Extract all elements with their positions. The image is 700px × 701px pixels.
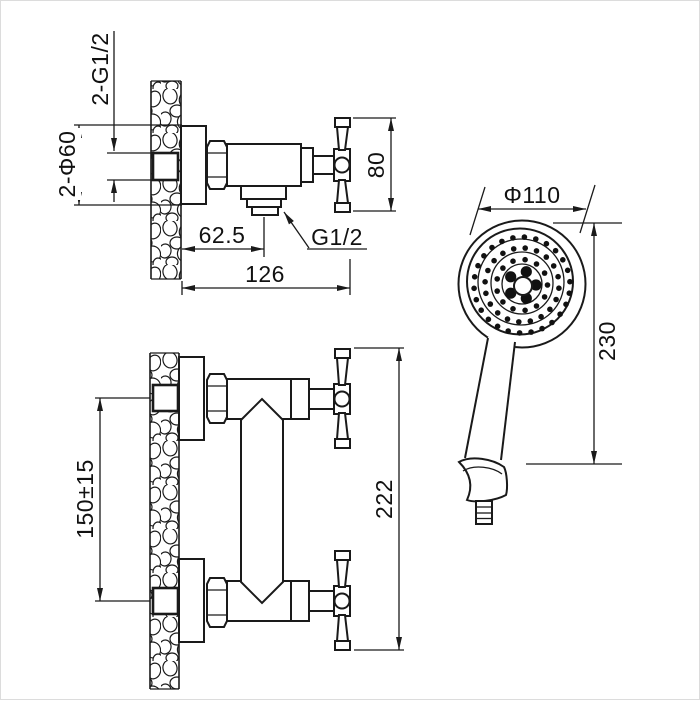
dim-shower-length: 230 <box>526 223 622 464</box>
nozzle-dot <box>516 319 522 325</box>
cross-handle-bottom <box>334 551 350 650</box>
nozzle-dot <box>528 329 534 335</box>
nozzle-dot <box>482 279 488 285</box>
nozzle-dot <box>542 294 548 300</box>
nozzle-dot <box>510 258 516 264</box>
hex-nut-bottom <box>207 578 227 627</box>
nozzle-dot <box>481 253 487 259</box>
nozzle-dot <box>505 328 511 334</box>
handle-span-label: 80 <box>363 152 389 179</box>
nozzle-dot <box>560 257 566 263</box>
nozzle-dot <box>567 290 573 296</box>
nozzle-dot <box>534 261 540 267</box>
hand-shower: Φ110 230 <box>459 182 623 524</box>
nozzle-dot <box>474 297 480 303</box>
nozzle-dot <box>549 320 555 326</box>
dim-inlet-threads: 2-G1/2 <box>87 31 152 202</box>
nozzle-dot <box>565 268 571 274</box>
nozzle-dot <box>557 311 563 317</box>
nozzle-dot <box>485 268 491 274</box>
inlet-pipe-top <box>153 385 178 411</box>
nozzle-dot <box>539 326 545 332</box>
nozzle-dot <box>555 274 561 280</box>
nozzle-dot <box>522 308 528 314</box>
bonnet-bottom <box>291 581 309 621</box>
escutcheon-diameter-label: 2-Φ60 <box>54 131 80 198</box>
handle-hub-side <box>335 158 350 173</box>
dim-overall-height: 222 <box>354 348 404 650</box>
escutcheon-bottom <box>179 559 204 642</box>
valve-front-view: 150±15 222 <box>72 348 404 689</box>
handle-stem-top <box>309 389 334 409</box>
hex-nut-top <box>207 374 227 423</box>
nozzle-dot <box>500 299 506 305</box>
nozzle-dot <box>472 274 478 280</box>
holder-bracket <box>459 458 507 501</box>
handle-stem-side <box>313 156 334 174</box>
hose-connector <box>476 501 492 524</box>
shower-head-face <box>459 221 586 461</box>
nozzle-dot <box>563 302 569 308</box>
head-diameter-label: Φ110 <box>503 182 560 208</box>
nozzle-dot <box>556 285 562 291</box>
nozzle-dot <box>494 276 500 282</box>
nozzle-dot <box>510 306 516 312</box>
escutcheon-side <box>181 126 206 204</box>
nozzle-dot <box>538 314 544 320</box>
nozzle-dot <box>544 254 550 260</box>
inlet-spacing-label: 150±15 <box>72 459 98 539</box>
nozzle-dot <box>488 301 494 307</box>
inlet-pipe-bottom <box>153 588 178 614</box>
cross-handle-side <box>334 118 350 212</box>
nozzle-dot <box>495 324 501 330</box>
nozzle-dot <box>528 318 534 324</box>
nozzle-dot <box>534 303 540 309</box>
cross-handle-top <box>334 349 350 448</box>
outlet-nipple <box>241 186 286 215</box>
nozzle-dot <box>551 263 557 269</box>
nozzle-dot <box>499 239 505 245</box>
nozzle-dot <box>553 297 559 303</box>
nozzle-dot <box>547 307 553 313</box>
handle-hub-top <box>335 392 350 407</box>
handle-hub-bottom <box>335 594 350 609</box>
nozzle-dot <box>491 258 497 264</box>
dim-handle-span: 80 <box>353 118 396 211</box>
nozzle-dot <box>486 317 492 323</box>
inlet-threads-label: 2-G1/2 <box>87 32 113 105</box>
nozzle-dot <box>500 251 506 257</box>
nozzle-dot <box>471 286 477 292</box>
nozzle-dot <box>533 236 539 242</box>
outlet-thread-label: G1/2 <box>311 224 363 250</box>
riser-pipe <box>241 399 283 603</box>
nozzle-dot <box>517 330 523 336</box>
shower-length-label: 230 <box>594 321 620 361</box>
total-projection-label: 126 <box>245 261 285 287</box>
nozzle-dot <box>495 310 501 316</box>
nozzle-dot <box>545 282 551 288</box>
dim-inlet-spacing: 150±15 <box>72 398 150 601</box>
nozzle-dot <box>510 235 516 241</box>
escutcheon-top <box>179 357 204 440</box>
nozzle-dot <box>475 263 481 269</box>
nozzle-dot <box>483 291 489 297</box>
dim-total-projection: 126 <box>182 259 350 295</box>
valve-body-side <box>227 144 301 186</box>
nozzle-dot <box>534 248 540 254</box>
nozzle-dot <box>478 307 484 313</box>
nozzle-dot <box>553 248 559 254</box>
nozzle-dot <box>522 245 528 251</box>
nozzle-dot <box>521 266 532 277</box>
dim-outlet-offset: 62.5 <box>182 217 264 257</box>
nozzle-dot <box>489 245 495 251</box>
center-nozzle <box>514 277 532 295</box>
nozzle-dot <box>511 246 517 252</box>
overall-height-label: 222 <box>371 479 397 519</box>
dim-head-diameter: Φ110 <box>470 182 595 235</box>
nozzle-dot <box>567 279 573 285</box>
drawing-svg: 2-G1/2 2-Φ60 62.5 126 80 <box>1 1 700 701</box>
callout-outlet-thread: G1/2 <box>284 212 367 250</box>
nozzle-dot <box>542 270 548 276</box>
nozzle-dot <box>522 257 528 263</box>
nozzle-dot <box>505 316 511 322</box>
inlet-pipe-side <box>153 153 178 180</box>
nozzle-dot <box>494 288 500 294</box>
nozzle-dot <box>522 234 528 240</box>
handle-stem-bottom <box>309 591 334 611</box>
nozzle-dot <box>544 241 550 247</box>
bonnet-side <box>301 148 313 182</box>
technical-drawing-canvas: 2-G1/2 2-Φ60 62.5 126 80 <box>0 0 700 700</box>
valve-side-view: 2-G1/2 2-Φ60 62.5 126 80 <box>54 31 396 295</box>
nozzle-dot <box>500 265 506 271</box>
bonnet-top <box>291 379 309 419</box>
outlet-offset-label: 62.5 <box>199 222 246 248</box>
hex-nut-side <box>207 141 227 189</box>
